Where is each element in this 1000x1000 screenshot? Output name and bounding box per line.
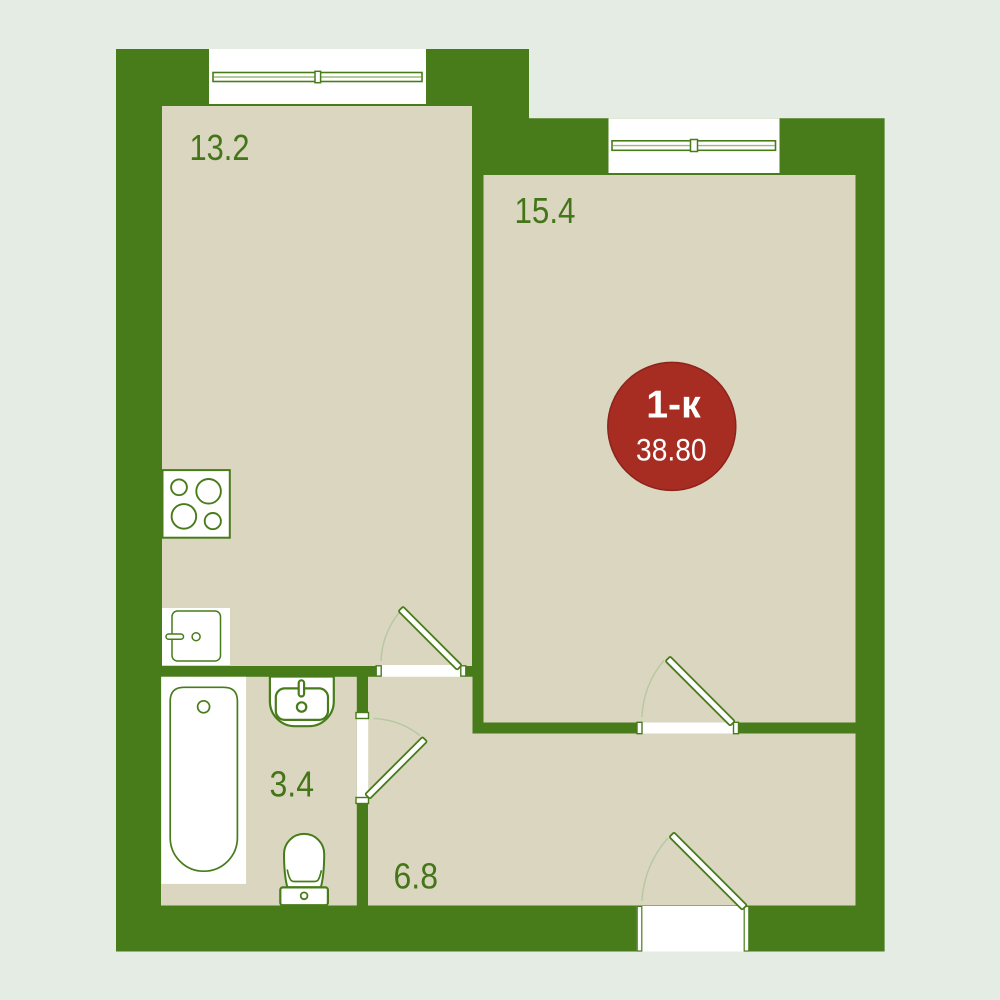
svg-text:15.4: 15.4 bbox=[515, 190, 576, 231]
svg-text:3.4: 3.4 bbox=[270, 764, 315, 805]
svg-text:6.8: 6.8 bbox=[394, 856, 439, 897]
svg-text:1-к: 1-к bbox=[646, 383, 701, 426]
svg-text:38.80: 38.80 bbox=[636, 432, 707, 468]
svg-text:13.2: 13.2 bbox=[190, 127, 250, 168]
